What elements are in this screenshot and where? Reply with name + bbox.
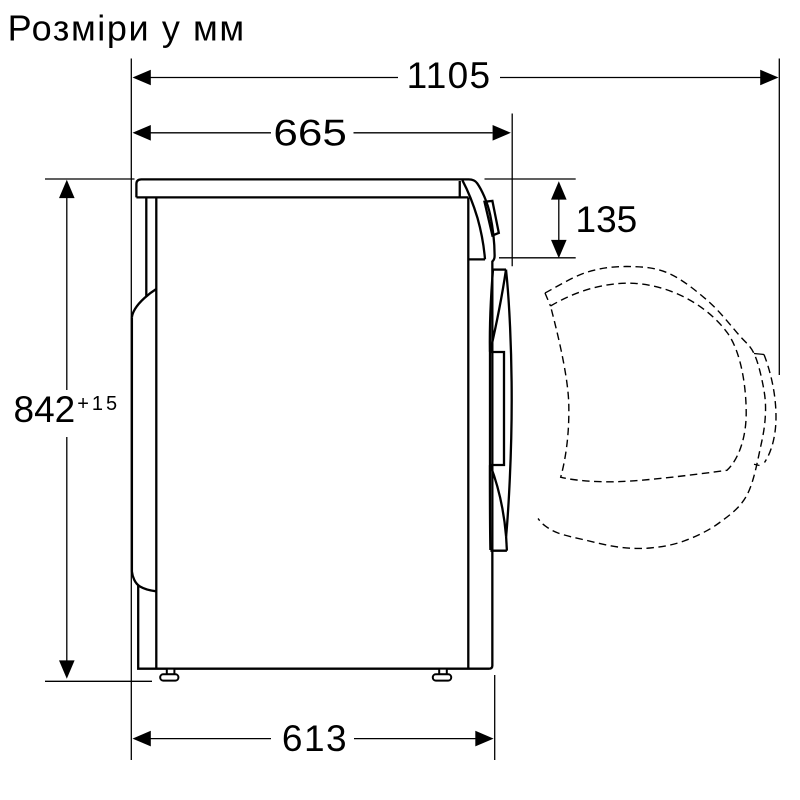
svg-text:665: 665 bbox=[273, 112, 346, 154]
svg-text:Розміри у мм: Розміри у мм bbox=[8, 8, 246, 49]
svg-text:613: 613 bbox=[282, 718, 348, 759]
svg-text:1105: 1105 bbox=[407, 55, 492, 96]
svg-text:135: 135 bbox=[576, 199, 638, 240]
